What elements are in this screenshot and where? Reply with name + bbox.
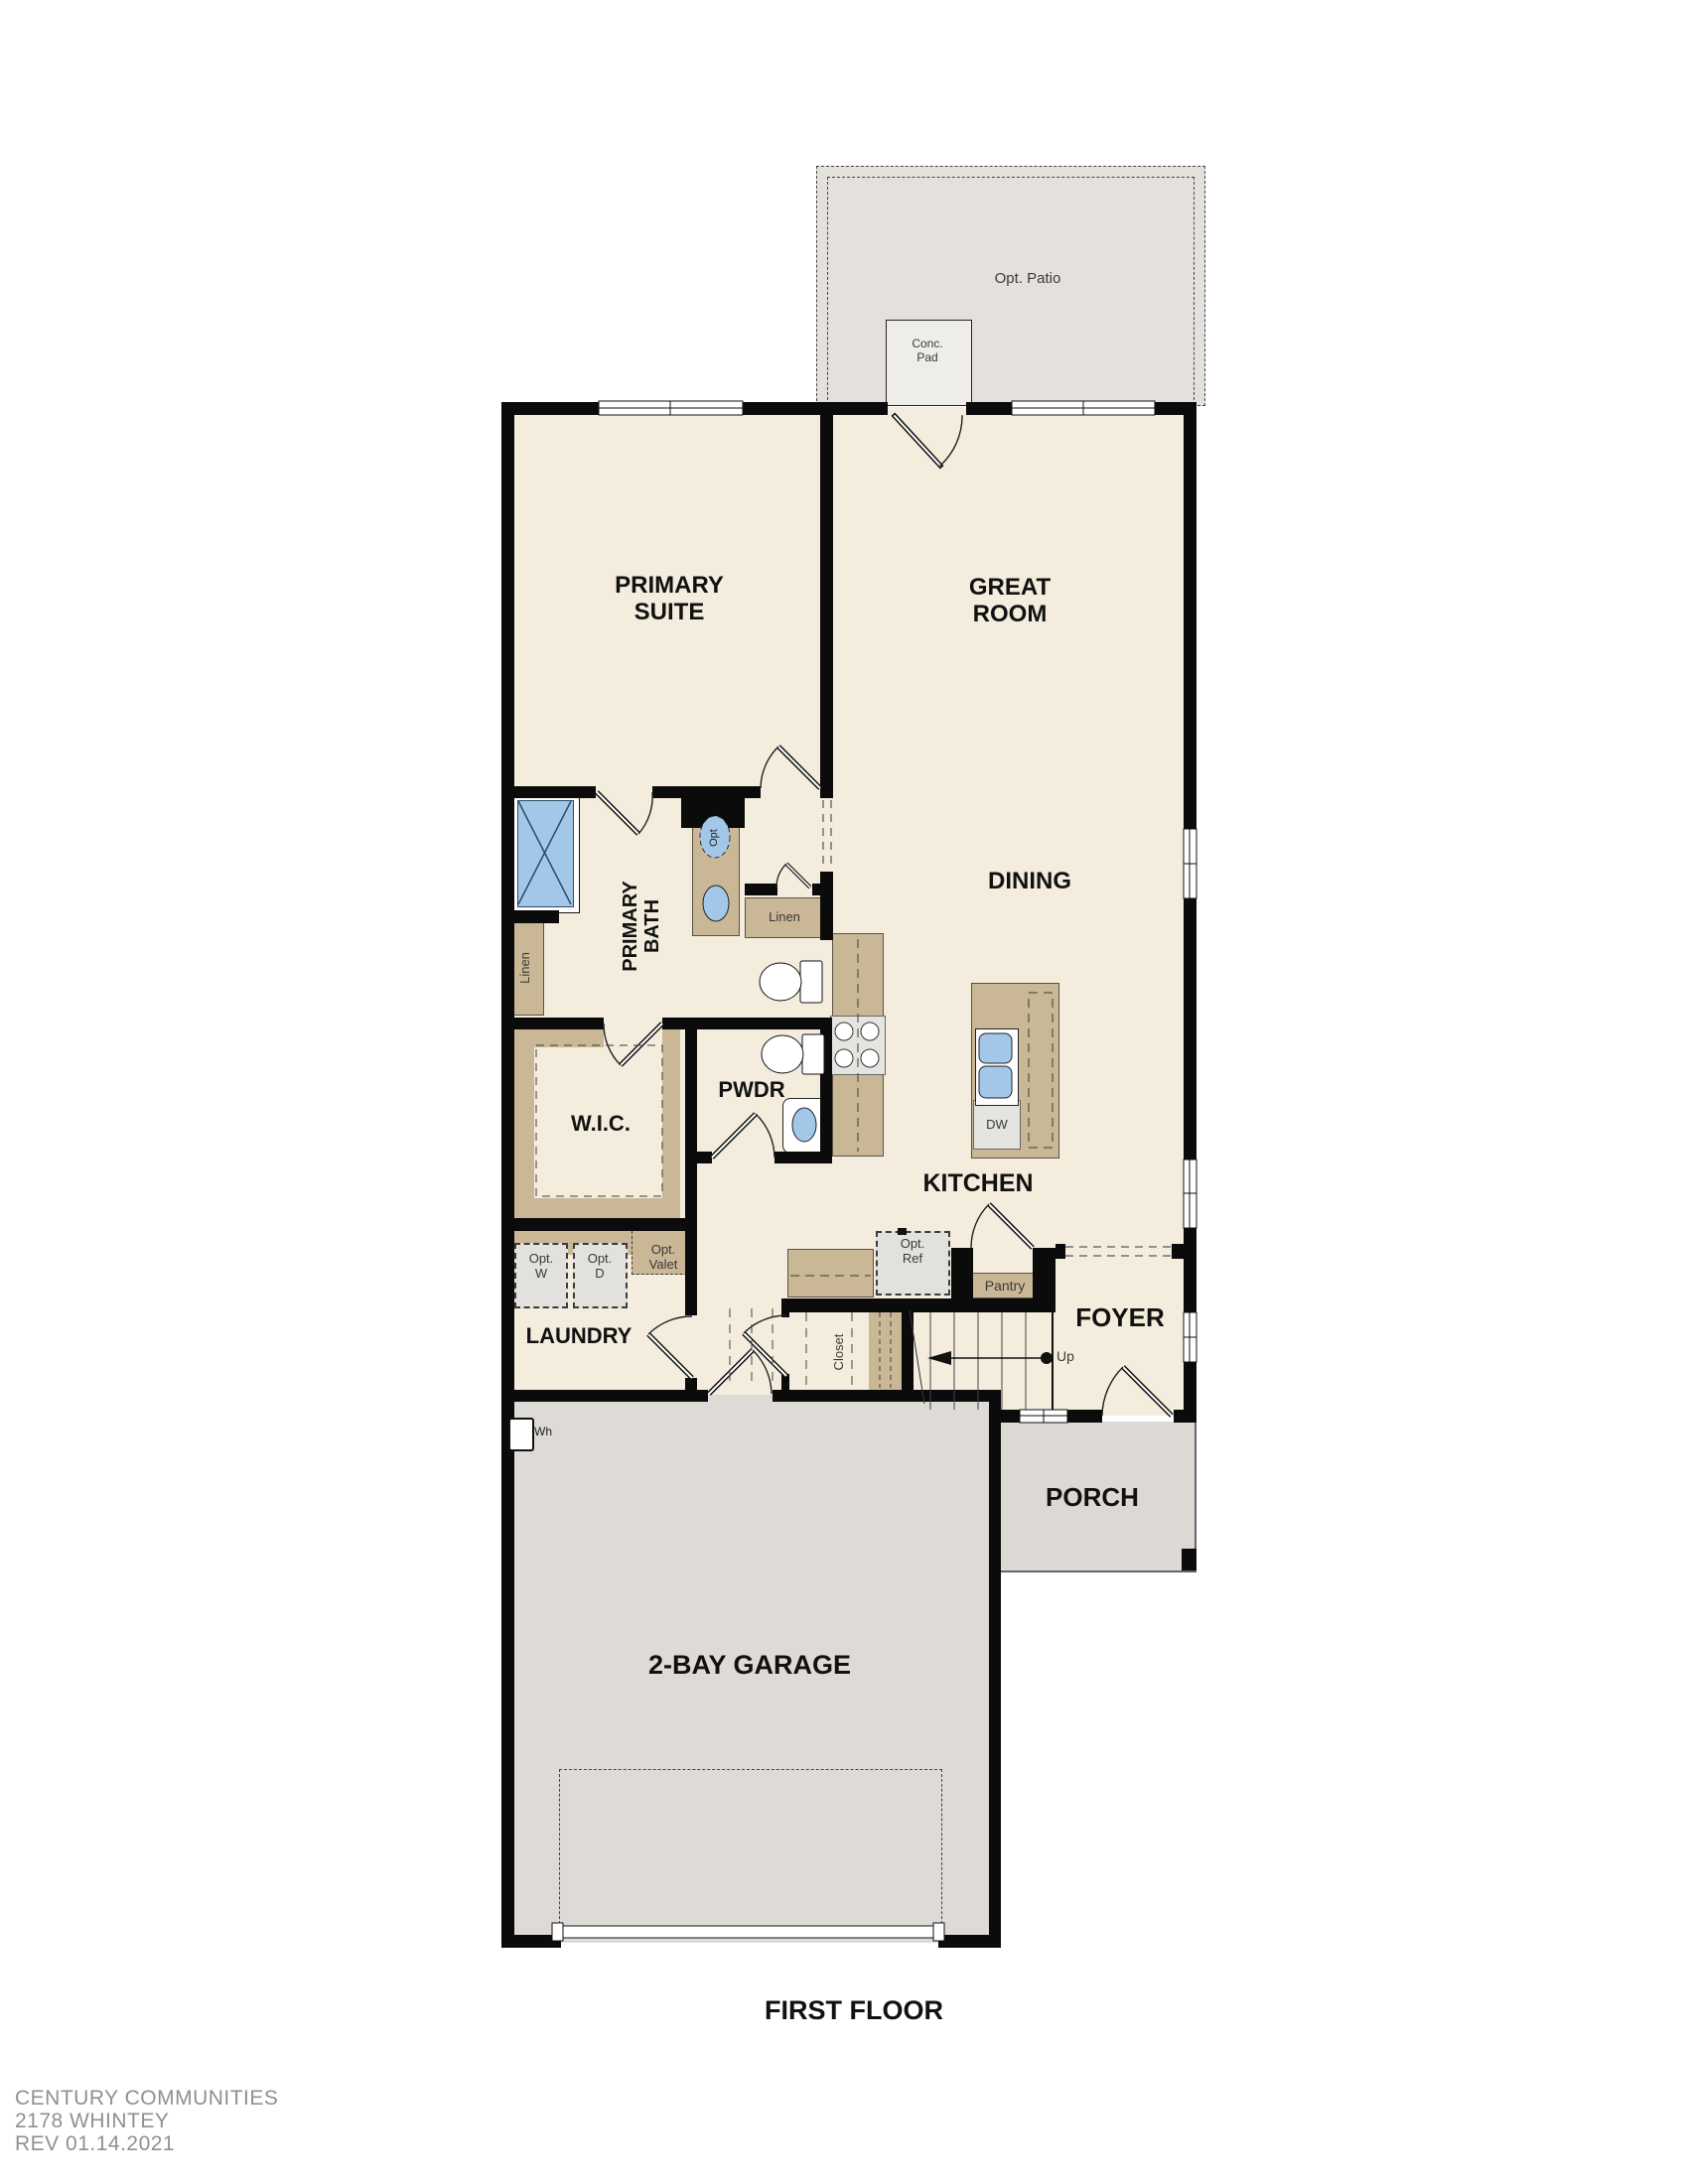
room-kitchen: KITCHEN bbox=[909, 1169, 1048, 1197]
opt-washer-label: Opt. W bbox=[523, 1252, 559, 1282]
opt-patio-inner-border bbox=[827, 177, 1195, 405]
wall-wic-right bbox=[685, 1018, 697, 1315]
builder-name: CENTURY COMMUNITIES bbox=[15, 2087, 278, 2110]
room-dining: DINING bbox=[970, 869, 1089, 895]
opt-valet-label: Opt. Valet bbox=[642, 1243, 684, 1273]
kitchen-counter-bottom bbox=[787, 1249, 874, 1297]
room-laundry: LAUNDRY bbox=[514, 1324, 643, 1349]
water-heater-box bbox=[508, 1418, 534, 1451]
wall-bath-bottom-a bbox=[501, 1018, 604, 1029]
wall-suite-bottom-a bbox=[514, 786, 596, 798]
room-porch: PORCH bbox=[1033, 1483, 1152, 1512]
wall-garage-right bbox=[989, 1400, 1001, 1948]
wall-wic-bottom bbox=[501, 1218, 697, 1231]
porch-post bbox=[1182, 1549, 1196, 1570]
room-primary-suite: PRIMARY SUITE bbox=[590, 573, 749, 626]
room-pwdr: PWDR bbox=[707, 1078, 796, 1103]
wall-front-a bbox=[1001, 1410, 1102, 1423]
wall-foyer-stub-l bbox=[1055, 1244, 1065, 1259]
wall-stairs-top bbox=[781, 1298, 1055, 1312]
wall-left bbox=[501, 402, 514, 1948]
wall-pantry-left bbox=[951, 1248, 973, 1302]
sheet-title: FIRST FLOOR bbox=[740, 1995, 968, 2026]
conc-pad-label: Conc. Pad bbox=[905, 338, 950, 365]
closet-shelf bbox=[869, 1307, 902, 1390]
up-label: Up bbox=[1056, 1348, 1086, 1364]
wall-top-right bbox=[966, 402, 1196, 415]
bathtub-basin bbox=[517, 800, 574, 907]
wall-top-left bbox=[501, 402, 888, 415]
wall-right bbox=[1184, 402, 1196, 1422]
wall-hall-great-lower bbox=[820, 872, 833, 940]
opt-sink-label: Opt bbox=[707, 823, 721, 853]
pantry-label: Pantry bbox=[965, 1278, 1045, 1294]
wall-suite-bottom-b bbox=[652, 786, 683, 798]
opt-patio-label: Opt. Patio bbox=[980, 270, 1075, 287]
floor-plan: Opt. Patio Conc. Pad PRIMARY SUITE GREAT… bbox=[0, 0, 1688, 2184]
room-wic: W.I.C. bbox=[556, 1112, 645, 1137]
wall-linen-a bbox=[745, 884, 777, 895]
wall-closet-left-b bbox=[781, 1374, 789, 1390]
wall-garage-bottom-a bbox=[501, 1935, 561, 1948]
wall-garage-top-a bbox=[501, 1390, 708, 1402]
plan-revision: REV 01.14.2021 bbox=[15, 2132, 278, 2155]
plan-model: 2178 WHINTEY bbox=[15, 2110, 278, 2132]
wall-garage-top-b bbox=[773, 1390, 1001, 1402]
wall-vanity-block bbox=[681, 786, 745, 828]
wall-closet-left-a bbox=[781, 1307, 789, 1317]
wall-front-b bbox=[1174, 1410, 1196, 1423]
linen-hall-label: Linen bbox=[750, 910, 819, 925]
title-block: CENTURY COMMUNITIES 2178 WHINTEY REV 01.… bbox=[15, 2087, 278, 2155]
water-heater-label: Wh bbox=[534, 1426, 564, 1439]
wall-pwdr-bottom-a bbox=[692, 1152, 712, 1163]
wall-linen-b bbox=[812, 884, 833, 895]
room-great-room: GREAT ROOM bbox=[940, 575, 1079, 628]
wall-pwdr-right bbox=[820, 1029, 832, 1152]
wall-pantry-right bbox=[1033, 1248, 1055, 1302]
island-sink-surround bbox=[975, 1028, 1019, 1106]
wall-garage-bottom-b bbox=[938, 1935, 1001, 1948]
wall-tub-bottom bbox=[501, 910, 559, 923]
room-foyer: FOYER bbox=[1060, 1303, 1180, 1332]
room-primary-bath: PRIMARY BATH bbox=[614, 862, 669, 991]
wall-closet-right bbox=[902, 1307, 914, 1402]
wall-pwdr-bottom-b bbox=[774, 1152, 832, 1163]
wic-door-gap bbox=[604, 1029, 662, 1047]
room-garage: 2-BAY GARAGE bbox=[635, 1650, 864, 1680]
range-stove bbox=[830, 1016, 886, 1075]
wall-suite-great bbox=[820, 415, 833, 798]
linen-bath-label: Linen bbox=[515, 933, 535, 1003]
garage-apron-dashed bbox=[559, 1769, 942, 1929]
dw-label: DW bbox=[981, 1118, 1013, 1133]
closet-label: Closet bbox=[830, 1317, 848, 1387]
opt-ref-label: Opt. Ref bbox=[891, 1237, 934, 1267]
wall-foyer-stub-r bbox=[1172, 1244, 1185, 1259]
opt-dryer-label: Opt. D bbox=[582, 1252, 618, 1282]
wall-suite-bottom-c bbox=[743, 786, 761, 798]
